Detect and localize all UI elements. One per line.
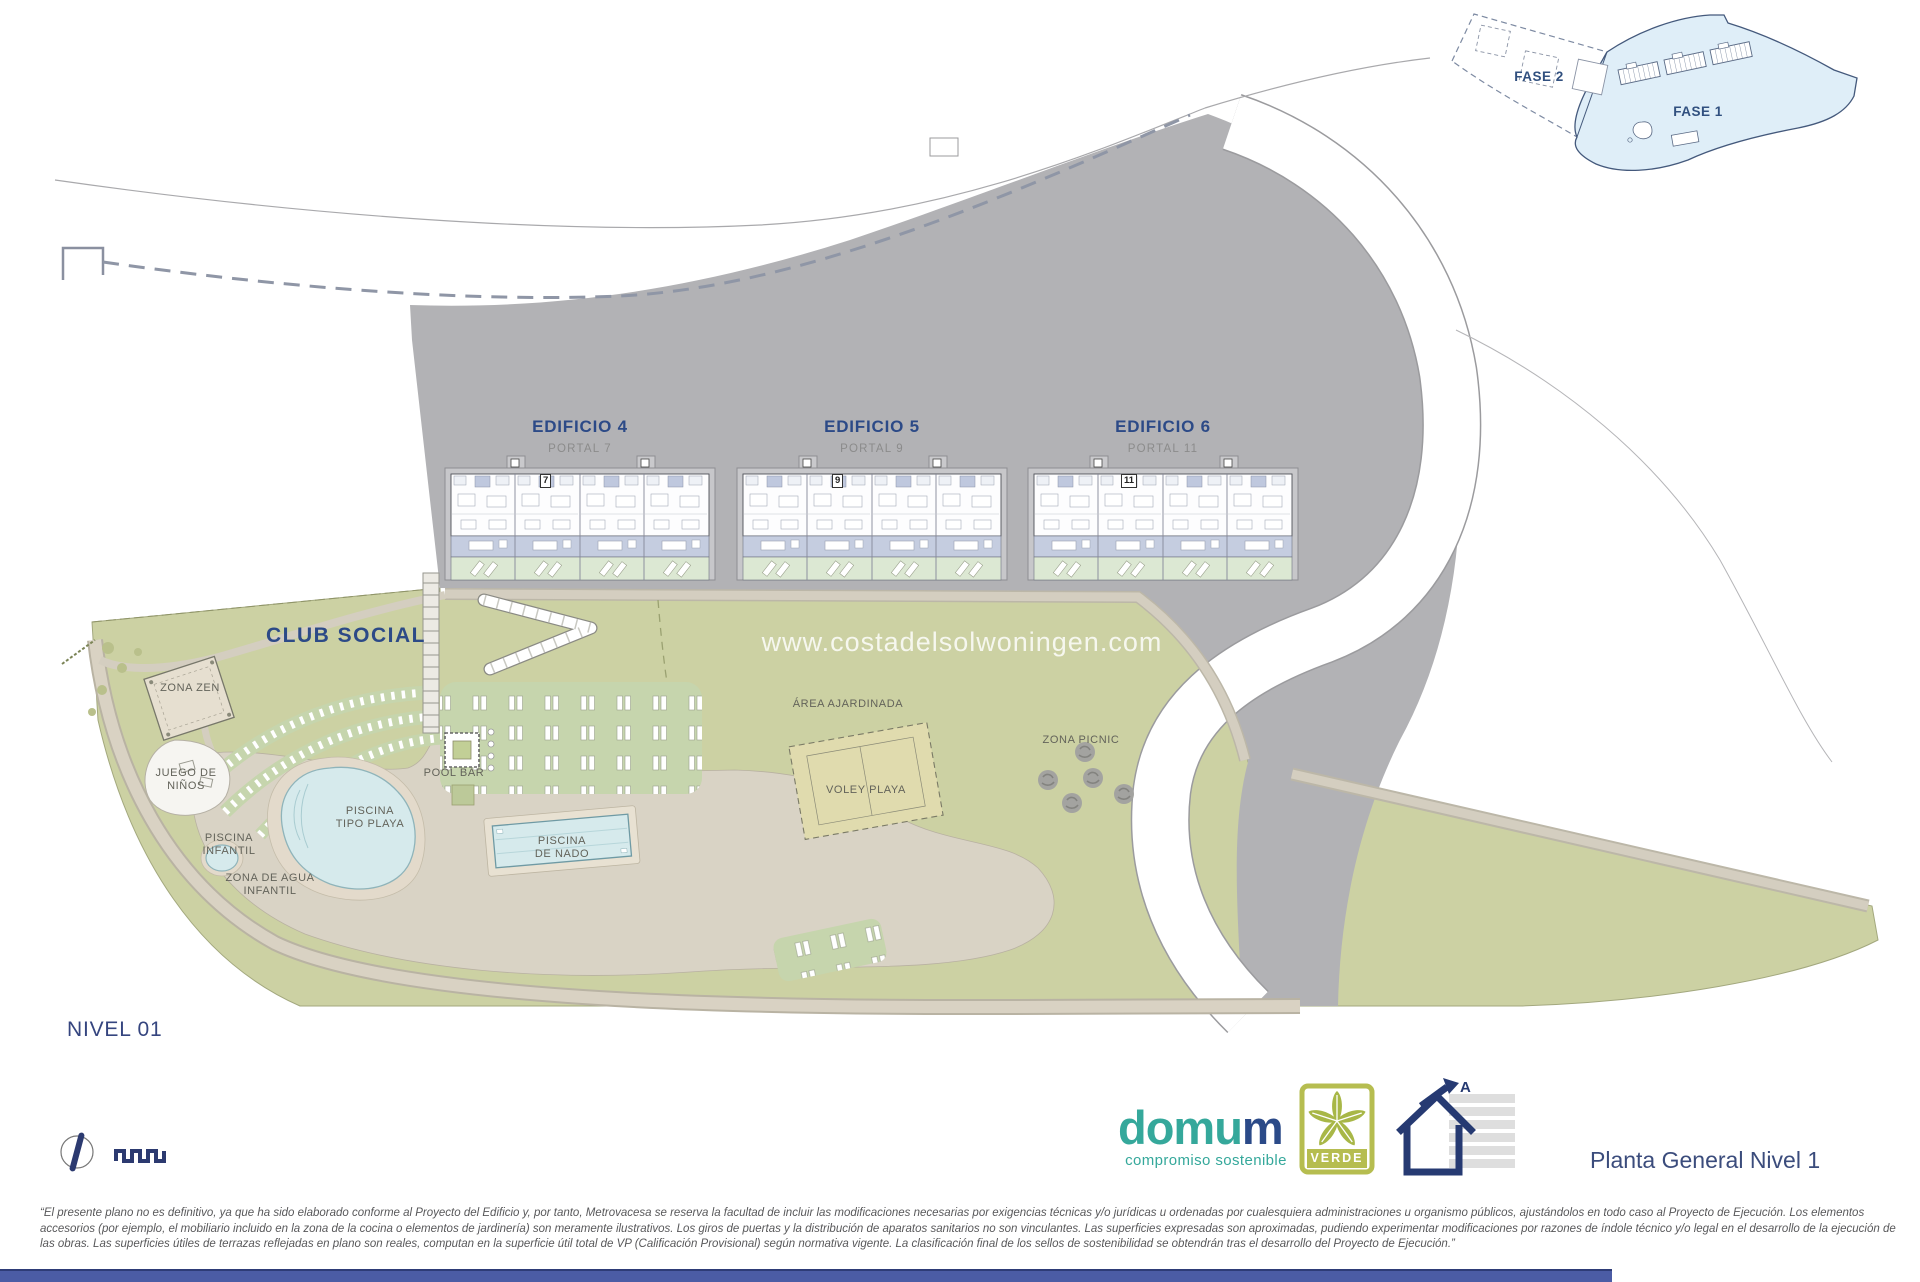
disclaimer-text: “El presente plano no es definitivo, ya …	[40, 1206, 1896, 1253]
disclaimer-line-3: las obras. Las superficies útiles de ter…	[40, 1237, 1896, 1253]
piscina-nado-label: PISCINA DE NADO	[482, 835, 642, 861]
domum-logo-main: domu	[1118, 1101, 1242, 1154]
scale-bar-icon	[114, 1144, 170, 1166]
inset-keyplan	[1452, 14, 1857, 170]
portal-7-label: PORTAL 7	[460, 443, 700, 456]
piscina-tipo-playa-label: PISCINA TIPO PLAYA	[290, 805, 450, 831]
zona-zen-label: ZONA ZEN	[130, 682, 250, 695]
portal-9-label: PORTAL 9	[752, 443, 992, 456]
level-label: NIVEL 01	[67, 1018, 163, 1042]
piscina-infantil-label: PISCINA INFANTIL	[169, 832, 289, 858]
area-ajardinada-label: ÁREA AJARDINADA	[748, 698, 948, 711]
sheet-title: Planta General Nivel 1	[1590, 1147, 1820, 1174]
stairs-walkway	[423, 573, 439, 733]
inset-fase2-label: FASE 2	[1484, 69, 1594, 84]
portal-11-label: PORTAL 11	[1043, 443, 1283, 456]
verde-badge-label: VERDE	[1299, 1151, 1375, 1165]
building-edificio-4	[445, 456, 715, 580]
building-edificio-5	[737, 456, 1007, 580]
zona-agua-infantil-label: ZONA DE AGUA INFANTIL	[180, 872, 360, 898]
edificio-4-label: EDIFICIO 4	[460, 420, 700, 433]
domum-logo: domum	[1118, 1105, 1283, 1151]
inset-fase1-label: FASE 1	[1643, 104, 1753, 119]
juego-ninos-label: JUEGO DE NIÑOS	[126, 767, 246, 793]
disclaimer-line-1: “El presente plano no es definitivo, ya …	[40, 1206, 1896, 1222]
zona-picnic-label: ZONA PICNIC	[1001, 734, 1161, 747]
domum-logo-accent: m	[1242, 1101, 1283, 1154]
north-arrow-icon	[56, 1128, 100, 1176]
portal-11-badge: 11	[1121, 474, 1137, 488]
energy-rating-label: A	[1460, 1079, 1471, 1096]
disclaimer-line-2: accesorios (por ejemplo, el mobiliario i…	[40, 1222, 1896, 1238]
pool-bar-label: POOL BAR	[394, 767, 514, 780]
club-social-label: CLUB SOCIAL	[236, 629, 456, 642]
voley-playa-label: VOLEY PLAYA	[786, 784, 946, 797]
building-edificio-6	[1028, 456, 1298, 580]
edificio-5-label: EDIFICIO 5	[752, 420, 992, 433]
portal-7-badge: 7	[540, 474, 551, 488]
footer-bar	[0, 1269, 1612, 1282]
edificio-6-label: EDIFICIO 6	[1043, 420, 1283, 433]
watermark: www.costadelsolwoningen.com	[712, 627, 1212, 658]
portal-9-badge: 9	[832, 474, 843, 488]
domum-tagline: compromiso sostenible	[1116, 1152, 1296, 1169]
site-plan-page: { "inset": { "fase1_label": "FASE 1", "f…	[0, 0, 1920, 1280]
